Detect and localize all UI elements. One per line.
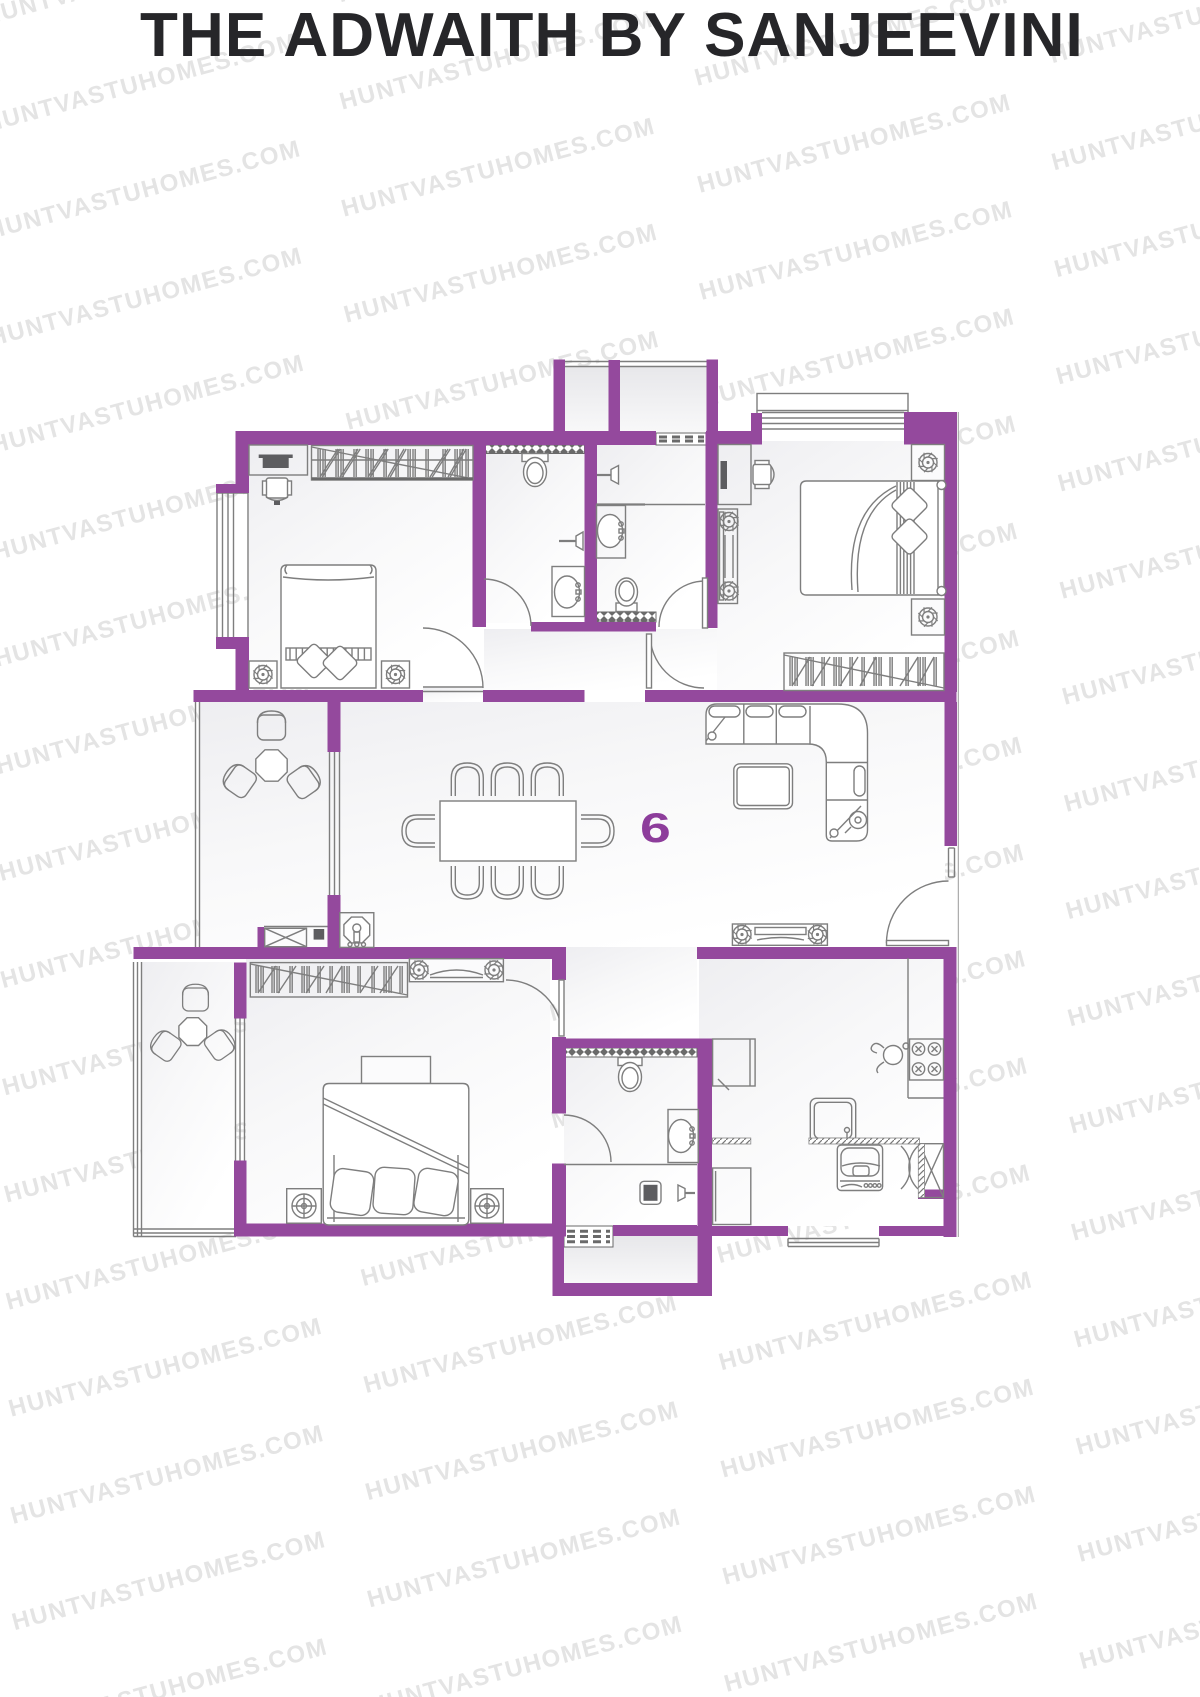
svg-text:HUNTVASTUHOMES.COM: HUNTVASTUHOMES.COM (1055, 388, 1200, 498)
svg-text:HUNTVASTUHOMES.COM: HUNTVASTUHOMES.COM (1057, 495, 1200, 605)
svg-text:HUNTVASTUHOMES.COM: HUNTVASTUHOMES.COM (718, 1373, 1038, 1483)
svg-text:HUNTVASTUHOMES.COM: HUNTVASTUHOMES.COM (362, 1396, 682, 1506)
svg-text:HUNTVASTUHOMES.COM: HUNTVASTUHOMES.COM (1059, 601, 1200, 711)
svg-text:HUNTVASTUHOMES.COM: HUNTVASTUHOMES.COM (1067, 1029, 1200, 1139)
svg-text:HUNTVASTUHOMES.COM: HUNTVASTUHOMES.COM (11, 1633, 331, 1697)
svg-text:HUNTVASTUHOMES.COM: HUNTVASTUHOMES.COM (1075, 1458, 1200, 1568)
svg-text:HUNTVASTUHOMES.COM: HUNTVASTUHOMES.COM (1061, 708, 1200, 818)
svg-text:HUNTVASTUHOMES.COM: HUNTVASTUHOMES.COM (1071, 1244, 1200, 1354)
svg-text:HUNTVASTUHOMES.COM: HUNTVASTUHOMES.COM (1049, 66, 1200, 176)
svg-text:HUNTVASTUHOMES.COM: HUNTVASTUHOMES.COM (1063, 815, 1200, 925)
svg-text:HUNTVASTUHOMES.COM: HUNTVASTUHOMES.COM (1077, 1565, 1200, 1675)
svg-text:HUNTVASTUHOMES.COM: HUNTVASTUHOMES.COM (1079, 1671, 1200, 1697)
svg-text:HUNTVASTUHOMES.COM: HUNTVASTUHOMES.COM (720, 1481, 1040, 1591)
svg-text:HUNTVASTUHOMES.COM: HUNTVASTUHOMES.COM (0, 135, 304, 245)
svg-text:HUNTVASTUHOMES.COM: HUNTVASTUHOMES.COM (341, 219, 661, 329)
svg-text:HUNTVASTUHOMES.COM: HUNTVASTUHOMES.COM (1053, 280, 1200, 390)
svg-text:HUNTVASTUHOMES.COM: HUNTVASTUHOMES.COM (716, 1266, 1036, 1376)
svg-text:HUNTVASTUHOMES.COM: HUNTVASTUHOMES.COM (364, 1503, 684, 1613)
svg-text:HUNTVASTUHOMES.COM: HUNTVASTUHOMES.COM (1073, 1351, 1200, 1461)
svg-text:HUNTVASTUHOMES.COM: HUNTVASTUHOMES.COM (6, 1313, 326, 1423)
svg-text:HUNTVASTUHOMES.COM: HUNTVASTUHOMES.COM (698, 303, 1018, 413)
svg-text:HUNTVASTUHOMES.COM: HUNTVASTUHOMES.COM (721, 1588, 1041, 1697)
svg-text:HUNTVASTUHOMES.COM: HUNTVASTUHOMES.COM (1051, 173, 1200, 283)
svg-text:HUNTVASTUHOMES.COM: HUNTVASTUHOMES.COM (338, 113, 658, 223)
svg-text:HUNTVASTUHOMES.COM: HUNTVASTUHOMES.COM (1068, 1137, 1200, 1247)
svg-text:HUNTVASTUHOMES.COM: HUNTVASTUHOMES.COM (696, 196, 1016, 306)
svg-text:HUNTVASTUHOMES.COM: HUNTVASTUHOMES.COM (0, 242, 306, 352)
svg-text:HUNTVASTUHOMES.COM: HUNTVASTUHOMES.COM (694, 89, 1014, 199)
svg-text:THE ADWAITH BY SANJEEVINI: THE ADWAITH BY SANJEEVINI (140, 1, 1084, 70)
svg-text:HUNTVASTUHOMES.COM: HUNTVASTUHOMES.COM (9, 1526, 329, 1636)
svg-text:6: 6 (640, 804, 671, 851)
svg-text:HUNTVASTUHOMES.COM: HUNTVASTUHOMES.COM (361, 1289, 681, 1399)
svg-text:HUNTVASTUHOMES.COM: HUNTVASTUHOMES.COM (1065, 922, 1200, 1032)
svg-text:HUNTVASTUHOMES.COM: HUNTVASTUHOMES.COM (8, 1420, 328, 1530)
svg-text:HUNTVASTUHOMES.COM: HUNTVASTUHOMES.COM (366, 1611, 686, 1697)
